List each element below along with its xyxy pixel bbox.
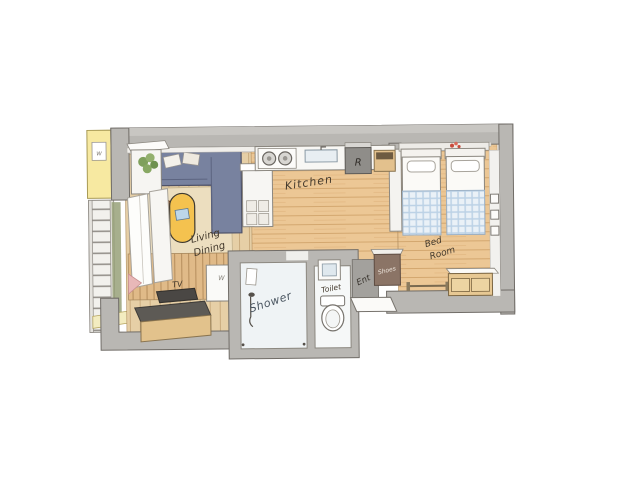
floor-plan-drawing: w <box>0 0 640 480</box>
bed-1 <box>401 149 442 235</box>
washing-machine-label: W <box>218 274 225 282</box>
drawer-1 <box>451 278 469 291</box>
sink <box>305 150 337 162</box>
picture-frame-3 <box>491 226 499 235</box>
picture-frame-1 <box>491 194 499 203</box>
rail-post-left <box>406 282 410 291</box>
notebook <box>175 208 189 220</box>
drawer-2 <box>471 278 489 291</box>
blanket-1 <box>402 191 440 235</box>
washbasin <box>318 260 340 280</box>
toilet <box>321 296 345 331</box>
shower-mirror <box>246 268 257 285</box>
floor-plan-canvas: w <box>0 0 640 480</box>
bed-2 <box>445 148 486 234</box>
blanket-2 <box>446 190 484 234</box>
bathroom-door-gap <box>286 251 308 260</box>
wall-frame-label: w <box>96 149 102 157</box>
sofa-pillow-2 <box>182 152 199 165</box>
tv-label: TV <box>172 279 184 289</box>
balcony-yellow-wall <box>87 130 112 198</box>
kitchen-island <box>240 163 275 226</box>
left-upper-wall <box>111 128 130 200</box>
picture-frame-2 <box>491 210 499 219</box>
entrance-step <box>351 297 397 311</box>
kitchen: R <box>255 142 395 174</box>
pillow-1 <box>407 161 435 172</box>
right-wall <box>499 124 515 314</box>
kitchen-shelf-slot <box>376 152 393 159</box>
pillow-2 <box>451 160 479 171</box>
appliance-r-label: R <box>355 158 362 169</box>
